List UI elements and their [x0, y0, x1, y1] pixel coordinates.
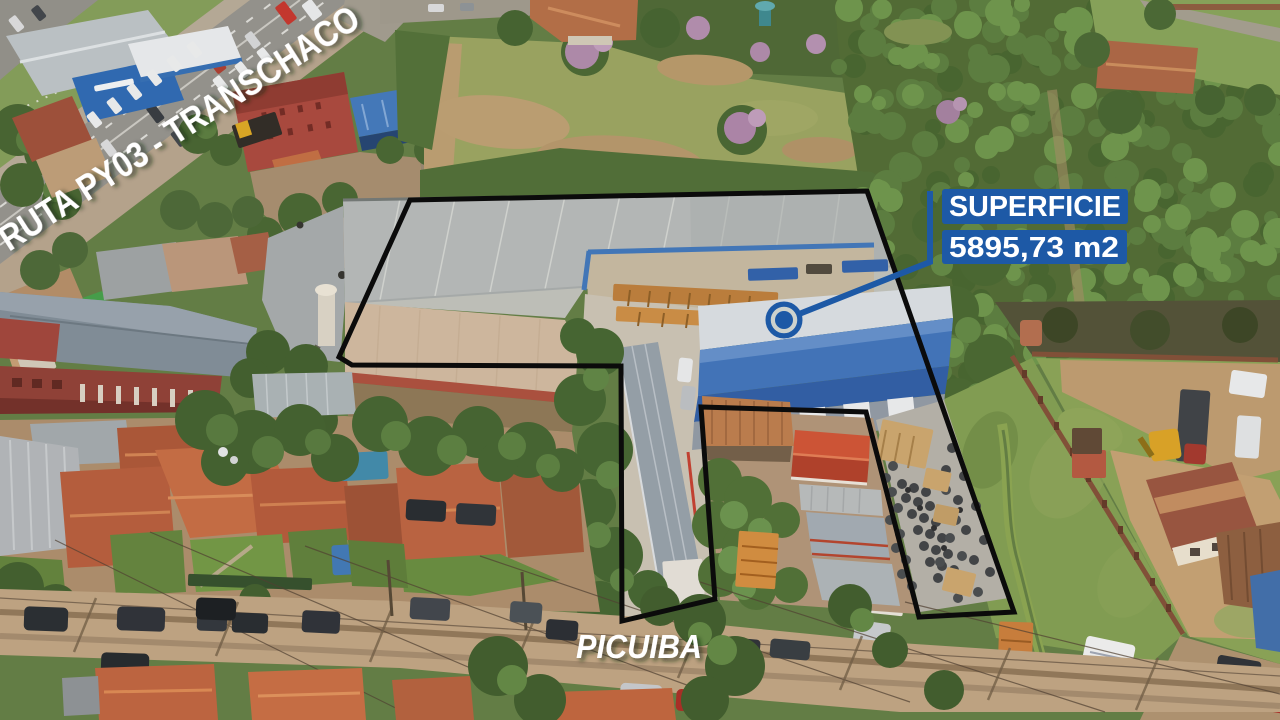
svg-text:SUPERFICIE: SUPERFICIE [949, 191, 1121, 223]
svg-text:5895,73 m2: 5895,73 m2 [949, 232, 1119, 264]
svg-text:PICUIBA: PICUIBA [576, 628, 702, 665]
